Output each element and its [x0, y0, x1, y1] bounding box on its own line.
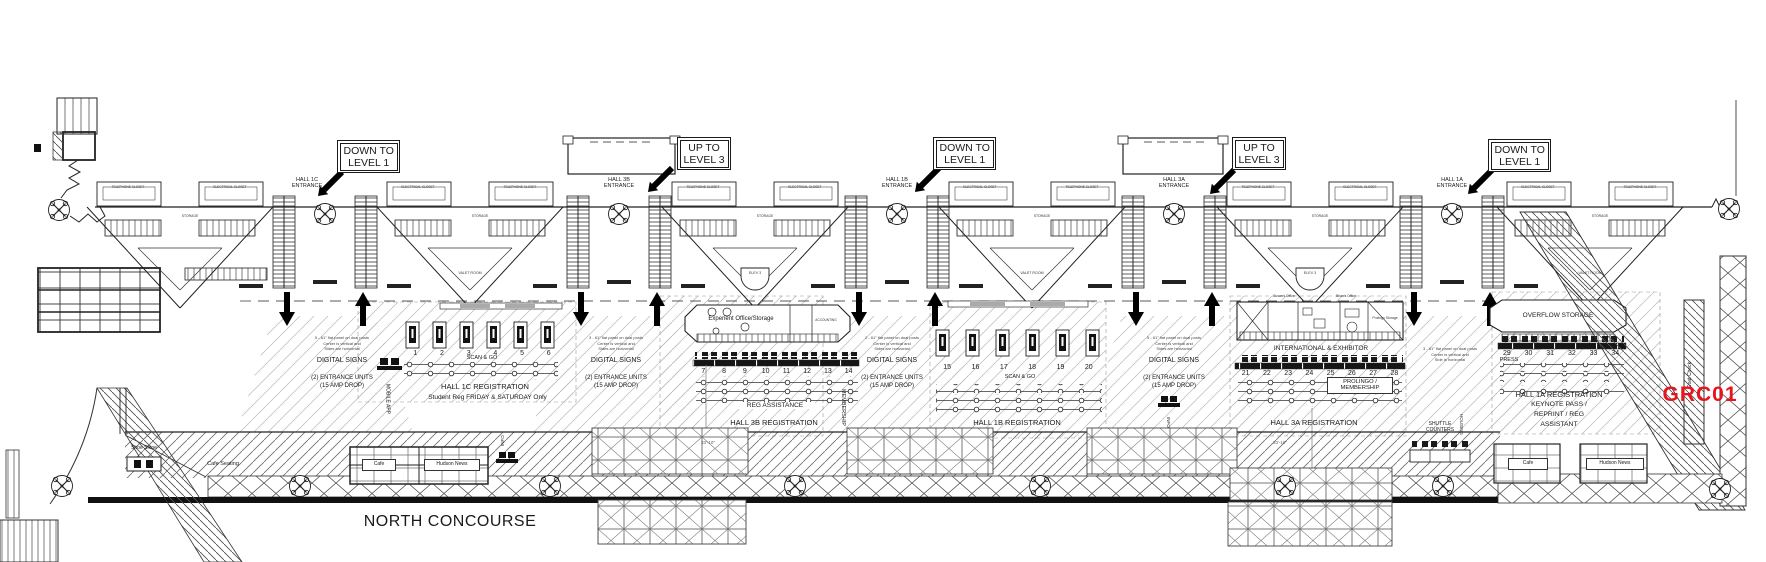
storage-label: STORAGE — [1298, 215, 1342, 219]
brians-office-label: Brian's Office — [1324, 295, 1368, 299]
level-sign-hall-1a: DOWN TO LEVEL 1 — [1488, 139, 1551, 172]
scan-go-label: SCAN & GO — [994, 374, 1046, 380]
storage-label: STORAGE — [743, 215, 787, 219]
info-stand-left-label: INFO — [501, 430, 506, 452]
level-sign-hall-3b: UP TO LEVEL 3 — [677, 137, 731, 170]
susans-office-label: Susan's Office — [1262, 295, 1306, 299]
hudson-news-right-label: Hudson News — [1586, 458, 1644, 470]
elevator-label: ELEV 3 — [731, 272, 779, 276]
digital-signs-label: DIGITAL SIGNS — [302, 357, 382, 365]
membership-label: MEMBERSHIP — [840, 377, 846, 437]
entrance-units-label: (15 AMP DROP) — [847, 383, 937, 390]
digital-signs-note: 2 - 61" flat panel on dual postsCenter i… — [847, 335, 937, 352]
experient-office-block — [685, 305, 850, 342]
entrance-label-3b: HALL 3BENTRANCE — [589, 177, 649, 189]
valet-room-label: VALET ROOM — [1008, 272, 1056, 276]
entrance-units-label: (2) ENTRANCE UNITS — [847, 375, 937, 382]
entrance-label-3a: HALL 3AENTRANCE — [1144, 177, 1204, 189]
valet-room-label: VALET ROOM — [1566, 272, 1614, 276]
sign-line: LEVEL 1 — [944, 154, 985, 166]
international-exhibitor-label: INTERNATIONAL & EXHIBITOR — [1253, 345, 1389, 352]
cafe-seating-label: Cafe Seating — [197, 461, 249, 467]
storage-label: STORAGE — [168, 215, 212, 219]
keynote-pass-label: KEYNOTE PASS / — [1520, 401, 1598, 408]
hall-1c-subtitle: Student Reg FRIDAY & SATURDAY Only — [400, 394, 575, 401]
digital-signs-note: 3 - 61" flat panel on dual postsCenter i… — [571, 335, 661, 352]
hall-1a-registration-label: HALL 1A REGISTRATION — [1507, 391, 1611, 399]
storage-label: STORAGE — [458, 215, 502, 219]
floor-plan-linework — [0, 0, 1766, 562]
sign-line: LEVEL 1 — [1499, 156, 1540, 168]
digital-signs-note: 5 - 61" flat panel on dual postsCenter i… — [297, 335, 387, 352]
storage-label: STORAGE — [1578, 215, 1622, 219]
prolingo-membership-box: PROLINGO /MEMBERSHIP — [1327, 377, 1393, 394]
mobile-app-label: MOBILE APP — [384, 374, 390, 424]
shoe-shine-stand-icon — [127, 457, 161, 471]
scan-go-label: SCAN & GO — [456, 355, 508, 361]
reprint-reg-label: REPRINT / REG — [1522, 411, 1596, 418]
cafe-right-label: Cafe — [1508, 458, 1548, 470]
entrance-label-1c: HALL 1CENTRANCE — [277, 177, 337, 189]
level-sign-hall-1c: DOWN TO LEVEL 1 — [337, 140, 400, 173]
entrance-units-label: (15 AMP DROP) — [571, 383, 661, 390]
shoe-shine-label: Shoe Shine — [118, 446, 170, 452]
closet-label: TELEPHONE CLOSET — [1233, 186, 1283, 190]
valet-room-label: VALET ROOM — [446, 272, 494, 276]
station-numbers-3a: 212223 242526 2728 — [1235, 370, 1405, 377]
closet-label: ELECTRICAL CLOSET — [1335, 186, 1385, 190]
closet-label: ELECTRICAL CLOSET — [205, 186, 255, 190]
entrance-units-label: (2) ENTRANCE UNITS — [1129, 375, 1219, 382]
closet-label: TELEPHONE CLOSET — [495, 186, 545, 190]
entrance-units-label: (15 AMP DROP) — [1129, 383, 1219, 390]
sign-line: DOWN TO — [344, 145, 394, 157]
station-numbers-1a: 293031 323334 — [1496, 350, 1626, 357]
hall-1c-registration-label: HALL 1C REGISTRATION — [415, 383, 555, 391]
entrance-units-label: (15 AMP DROP) — [297, 383, 387, 390]
digital-signs-label: DIGITAL SIGNS — [852, 357, 932, 365]
closet-label: ELECTRICAL CLOSET — [955, 186, 1005, 190]
closet-label: TELEPHONE CLOSET — [678, 186, 728, 190]
closet-label: TELEPHONE CLOSET — [103, 186, 153, 190]
hall-1b-registration-label: HALL 1B REGISTRATION — [957, 419, 1077, 427]
closet-label: TELEPHONE CLOSET — [1615, 186, 1665, 190]
left-end-structure — [34, 98, 267, 332]
digital-signs-note: 5 - 61" flat panel on dual postsCenter i… — [1129, 335, 1219, 352]
entrance-units-label: (2) ENTRANCE UNITS — [297, 375, 387, 382]
closet-label: TELEPHONE CLOSET — [1057, 186, 1107, 190]
sign-line: LEVEL 1 — [348, 157, 389, 169]
digital-signs-label: DIGITAL SIGNS — [576, 357, 656, 365]
hall-3b-registration-label: HALL 3B REGISTRATION — [714, 419, 834, 427]
assistant-label: ASSISTANT — [1526, 421, 1592, 428]
sign-line: DOWN TO — [1495, 144, 1545, 156]
floor-plan: DOWN TO LEVEL 1 UP TO LEVEL 3 DOWN TO LE… — [0, 0, 1766, 562]
sign-line: UP TO — [1243, 142, 1275, 154]
entrance-label-1a: HALL 1AENTRANCE — [1422, 177, 1482, 189]
info-stand-right-label: INFO — [1165, 410, 1170, 434]
hudson-news-left-label: Hudson News — [424, 459, 480, 471]
sign-line: LEVEL 3 — [684, 154, 725, 166]
elevator-label: ELEV 3 — [1286, 272, 1334, 276]
level-sign-hall-3a: UP TO LEVEL 3 — [1232, 137, 1286, 170]
dimension-label: 33'-10" — [686, 441, 730, 446]
sign-line: LEVEL 3 — [1239, 154, 1280, 166]
storage-label: STORAGE — [1020, 215, 1064, 219]
drawing-code: GRC01 — [1650, 383, 1750, 406]
international-office-block — [1237, 302, 1403, 340]
digital-signs-note: 3 - 61" flat panel on dual postsCenter i… — [1405, 346, 1495, 363]
north-concourse-title: NORTH CONCOURSE — [360, 513, 540, 531]
prolingo-storage-label: Prolingo Storage — [1368, 317, 1402, 321]
sign-line: DOWN TO — [940, 142, 990, 154]
utility-pods — [87, 182, 1683, 308]
reg-assistance-label: REG ASSISTANCE — [735, 402, 815, 409]
station-numbers-1b: 151617 181920 — [933, 364, 1103, 371]
sign-line: UP TO — [688, 142, 720, 154]
entrance-label-1b: HALL 1BENTRANCE — [867, 177, 927, 189]
cafe-left-label: Cafe — [362, 459, 396, 471]
level-sign-hall-1b: DOWN TO LEVEL 1 — [933, 137, 996, 170]
closet-label: ELECTRICAL CLOSET — [1513, 186, 1563, 190]
station-numbers-3b: 789 101112 1314 — [693, 368, 859, 375]
vestibules — [563, 136, 1228, 174]
overflow-storage-label: OVERFLOW STORAGE — [1508, 312, 1608, 319]
housing-label: HOUSING — [1458, 406, 1463, 444]
accounting-label: ACCOUNTING — [810, 319, 842, 323]
dimension-label: 33'-10" — [1258, 441, 1302, 446]
press-label: PRESS — [1494, 357, 1524, 363]
experient-office-label: Experient Office/Storage — [698, 316, 784, 323]
digital-signs-label: DIGITAL SIGNS — [1134, 357, 1214, 365]
closet-label: ELECTRICAL CLOSET — [780, 186, 830, 190]
entrance-units-label: (2) ENTRANCE UNITS — [571, 375, 661, 382]
hall-3a-registration-label: HALL 3A REGISTRATION — [1254, 419, 1374, 427]
closet-label: ELECTRICAL CLOSET — [393, 186, 443, 190]
